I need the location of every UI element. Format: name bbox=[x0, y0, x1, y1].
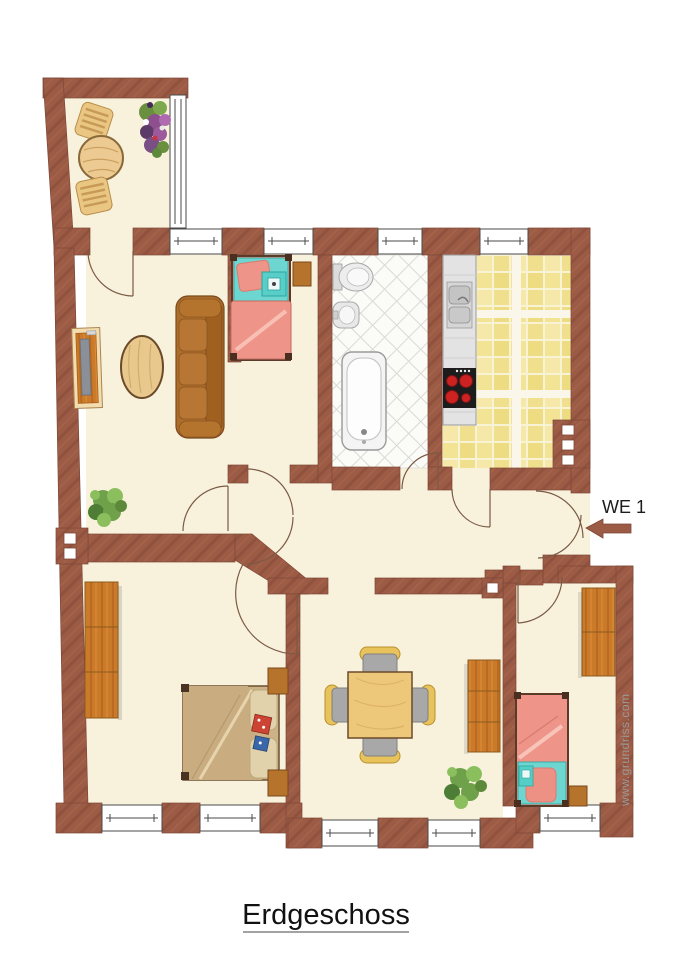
balcony-bottom-wall-right bbox=[133, 228, 170, 255]
floor-title: Erdgeschoss bbox=[242, 899, 410, 931]
balcony-chair-2 bbox=[75, 176, 113, 216]
unit-label-group: WE 1 bbox=[586, 497, 646, 538]
unit-label: WE 1 bbox=[602, 497, 646, 517]
tv-screen bbox=[80, 339, 91, 395]
stove bbox=[443, 368, 476, 408]
bath-south-wall bbox=[332, 467, 400, 490]
watermark: www.grundriss.com bbox=[618, 693, 632, 807]
radiator-cell bbox=[562, 440, 574, 450]
window-top-1 bbox=[170, 229, 222, 254]
wardrobe-left bbox=[85, 582, 122, 720]
top-wall-seg1 bbox=[222, 228, 264, 255]
dining-chair-bottom bbox=[360, 735, 400, 763]
balcony-table bbox=[79, 136, 123, 180]
balcony-top-wall bbox=[43, 78, 188, 98]
smallbed-bath-wall bbox=[318, 255, 332, 483]
window-top-4 bbox=[480, 229, 528, 254]
dining-table bbox=[348, 672, 412, 738]
bathtub-drain bbox=[361, 429, 367, 435]
unit-arrow-icon bbox=[586, 519, 631, 538]
window-balcony-side bbox=[170, 95, 186, 228]
nightstand-bedroomL-bottom bbox=[268, 770, 288, 796]
nightstand-bedroomL-top bbox=[268, 668, 288, 694]
dining-chair-top bbox=[360, 647, 400, 675]
nightstand-bedroomR bbox=[569, 786, 587, 806]
radiator-cell bbox=[64, 548, 76, 559]
radiator-cell bbox=[562, 455, 574, 465]
bath-kitchen-wall bbox=[428, 255, 442, 467]
sofa bbox=[176, 296, 224, 438]
window-bottom-bedroomL-2 bbox=[200, 805, 260, 831]
window-top-3 bbox=[378, 229, 422, 254]
bedroomR-bottom-seg1 bbox=[516, 803, 540, 833]
bathtub bbox=[342, 352, 386, 450]
dining-bottom-seg2 bbox=[378, 818, 428, 848]
sink bbox=[333, 302, 359, 328]
bedroomR-bottom-corner bbox=[600, 803, 633, 837]
dining-top-wall-left bbox=[268, 578, 328, 594]
window-bottom-dining-2 bbox=[428, 820, 480, 846]
bath-kitchen-stub bbox=[428, 467, 452, 490]
sideboard-tv bbox=[72, 328, 103, 409]
dining-sideboard bbox=[464, 660, 500, 754]
kitchen-south-wall bbox=[490, 468, 571, 490]
double-bed bbox=[181, 684, 279, 780]
smallbed-south-stub-right bbox=[290, 465, 318, 483]
toilet bbox=[333, 263, 373, 291]
hall-square-detail-inner bbox=[487, 583, 498, 593]
window-top-2 bbox=[264, 229, 313, 254]
kitchen-counter bbox=[443, 255, 476, 425]
kitchen bbox=[443, 255, 476, 425]
window-bottom-bedroomL-1 bbox=[102, 805, 162, 831]
radiator-cell bbox=[562, 425, 574, 435]
kitchen-sink bbox=[447, 282, 472, 328]
floor-title-group: Erdgeschoss bbox=[242, 899, 410, 932]
floorplan-page: WE 1 www.grundriss.com Erdgeschoss bbox=[0, 0, 674, 960]
nightstand-top bbox=[293, 262, 311, 286]
bedroomL-bottom-corner bbox=[56, 803, 102, 833]
entry-threshold bbox=[540, 488, 590, 558]
floorplan-drawing: WE 1 www.grundriss.com Erdgeschoss bbox=[0, 0, 674, 960]
radiator-cell bbox=[64, 533, 76, 544]
single-bed-top bbox=[230, 254, 292, 360]
living-bedroom-wall bbox=[88, 534, 235, 562]
window-bottom-dining-1 bbox=[322, 820, 378, 846]
top-wall-seg2 bbox=[313, 228, 378, 255]
wardrobe-right bbox=[578, 588, 615, 678]
smallbed-south-stub-left bbox=[228, 465, 248, 483]
bedroomL-bottom-seg bbox=[162, 803, 200, 833]
dining-bottom-seg1 bbox=[288, 818, 322, 848]
single-bed-bottom bbox=[514, 692, 569, 807]
top-wall-seg3 bbox=[422, 228, 480, 255]
window-bottom-bedroomR bbox=[540, 805, 600, 831]
oval-coffee-table bbox=[121, 336, 163, 398]
